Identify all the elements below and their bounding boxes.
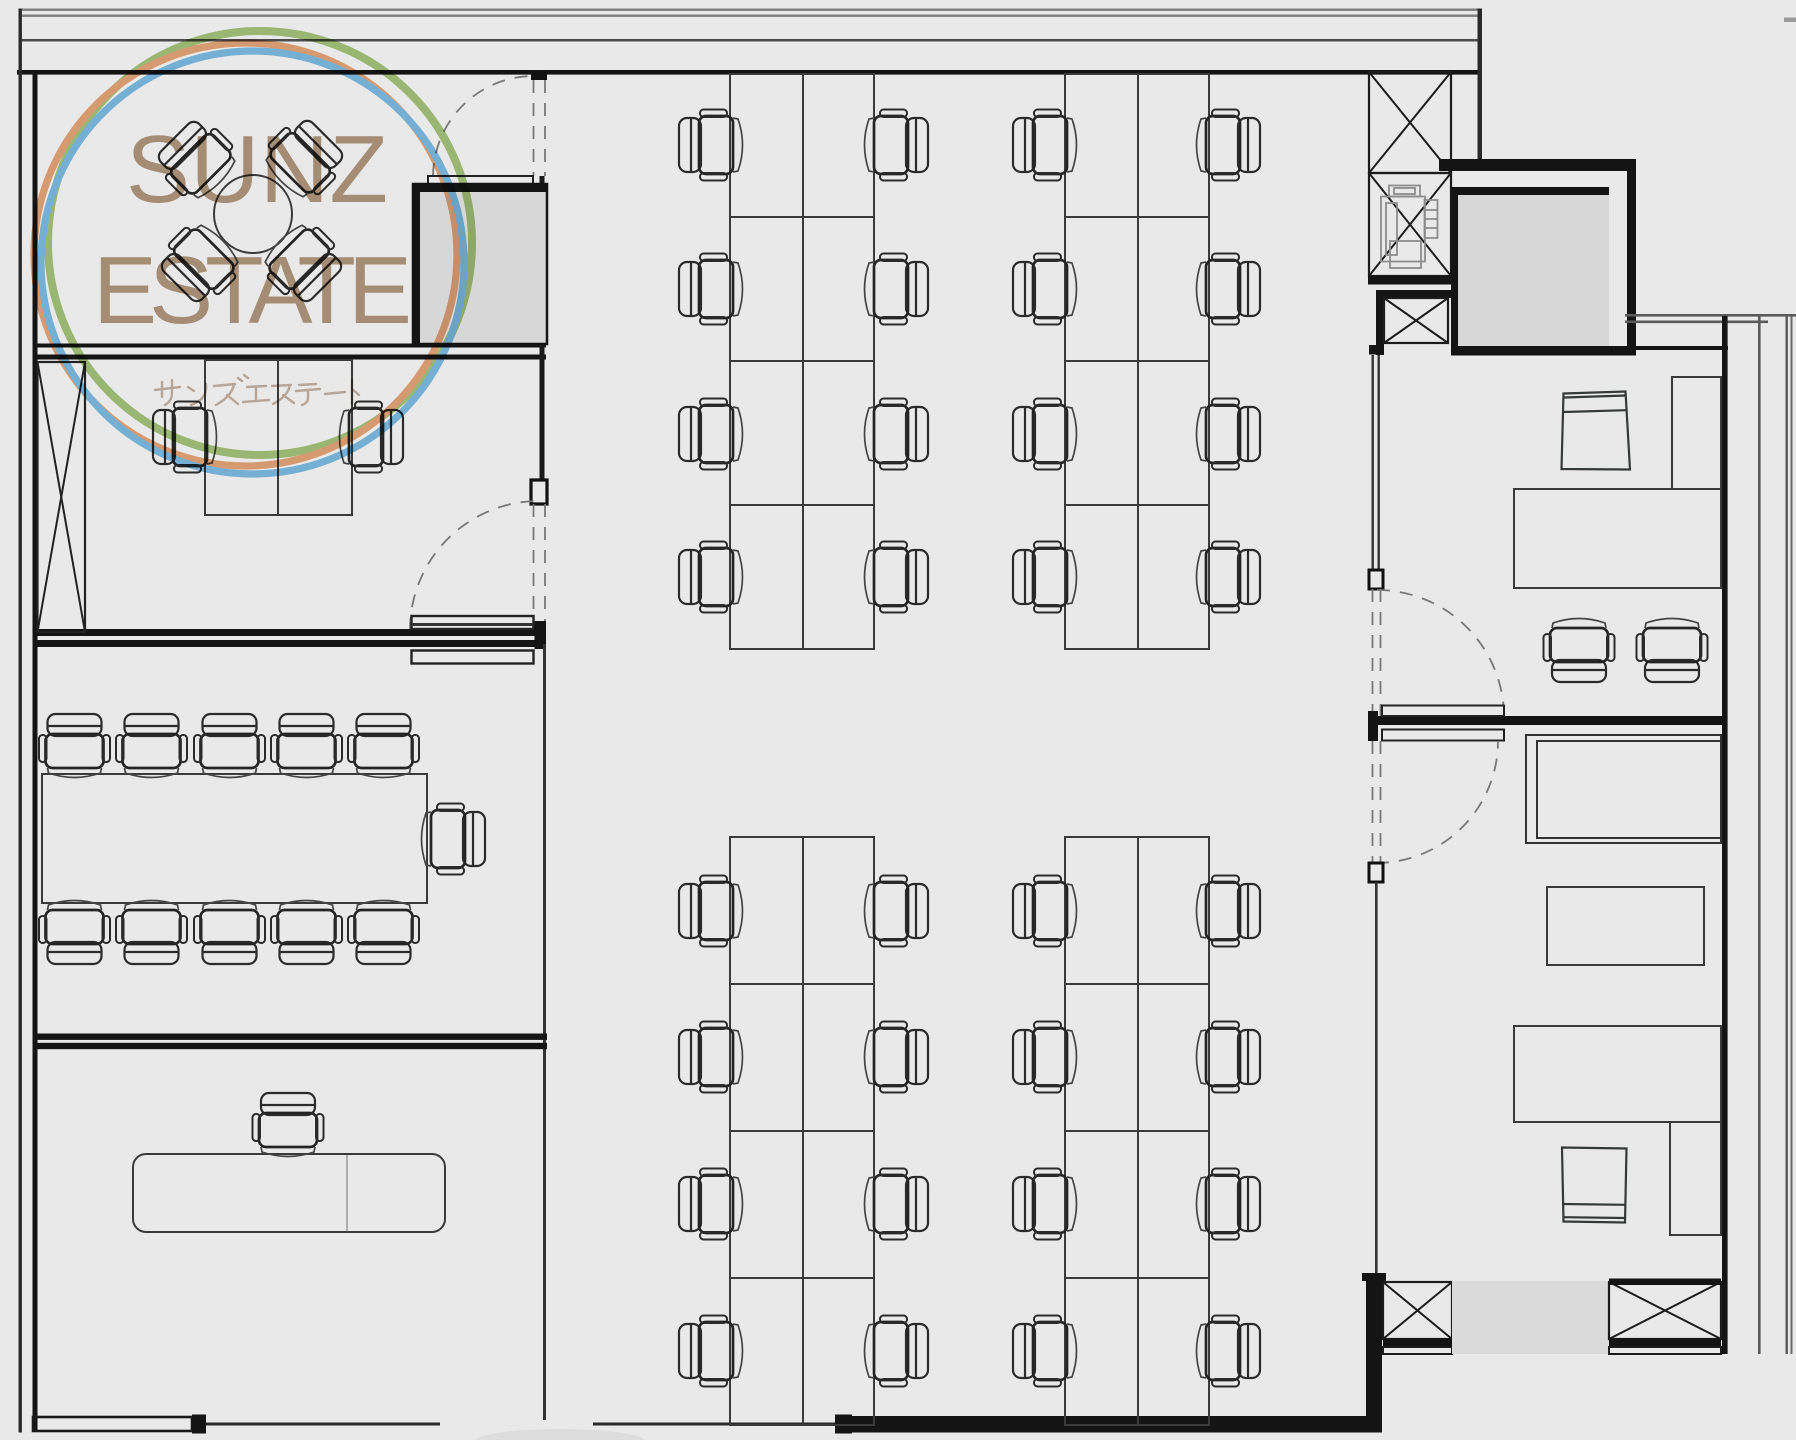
svg-text:SUNZ: SUNZ: [126, 116, 388, 223]
svg-text:ESTATE: ESTATE: [93, 237, 412, 344]
